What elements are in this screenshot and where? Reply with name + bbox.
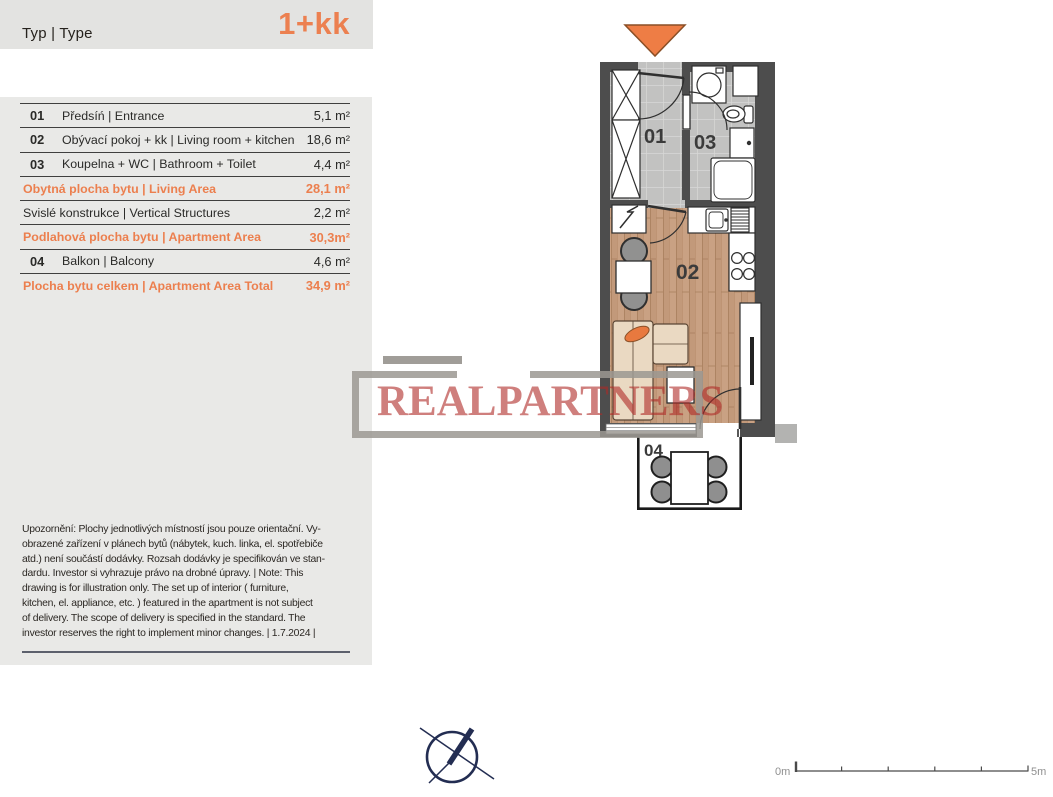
toilet	[723, 106, 753, 123]
header-bar: Typ | Type 1+kk	[0, 0, 373, 49]
entrance-arrow	[625, 25, 685, 56]
room-label-02: 02	[676, 261, 699, 284]
floorplan-sheet: Typ | Type 1+kk 01Předsíń | Entrance5,1 …	[0, 0, 1053, 797]
dining-set	[616, 238, 651, 310]
disclaimer-underline	[22, 651, 350, 653]
disclaimer-line: of delivery. The scope of delivery is sp…	[22, 612, 368, 627]
disclaimer-line: kitchen, el. appliance, etc. ) featured …	[22, 597, 368, 612]
room-area: 18,6 m²	[307, 132, 350, 147]
area-table-row: Obytná plocha bytu | Living Area28,1 m²	[20, 176, 350, 200]
room-area: 2,2 m²	[314, 205, 350, 220]
area-table-row: 01Předsíń | Entrance5,1 m²	[20, 103, 350, 127]
room-area: 28,1 m²	[306, 181, 350, 196]
tv-board	[740, 303, 761, 420]
room-area: 34,9 m²	[306, 278, 350, 293]
room-name: Obytná plocha bytu | Living Area	[20, 182, 306, 196]
room-number: 04	[20, 254, 62, 269]
room-area: 4,6 m²	[314, 254, 350, 269]
disclaimer-line: Upozornění: Plochy jednotlivých místnost…	[22, 523, 368, 538]
area-table-row: Svislé konstrukce | Vertical Structures2…	[20, 200, 350, 224]
room-name: Plocha bytu celkem | Apartment Area Tota…	[20, 279, 306, 293]
washbasin	[730, 128, 754, 158]
balcony-table	[671, 452, 708, 504]
area-table-row: 04Balkon | Balcony4,6 m²	[20, 249, 350, 273]
room-name: Předsíń | Entrance	[62, 109, 314, 123]
room-number: 01	[20, 108, 62, 123]
room-number: 03	[20, 157, 62, 172]
disclaimer-line: dardu. Investor si vyhrazuje právo na dr…	[22, 567, 368, 582]
room-label-03: 03	[694, 132, 716, 154]
room-name: Koupelna + WC | Bathroom + Toilet	[62, 157, 314, 171]
disclaimer-text: Upozornění: Plochy jednotlivých místnost…	[22, 523, 368, 641]
area-table-row: 03Koupelna + WC | Bathroom + Toilet4,4 m…	[20, 152, 350, 176]
room-label-04: 04	[644, 441, 663, 460]
wardrobe	[612, 70, 640, 198]
room-name: Obývací pokoj + kk | Living room + kitch…	[62, 133, 307, 147]
room-label-01: 01	[644, 126, 666, 148]
disclaimer-line: atd.) není součástí dodávky. Rozsah dodá…	[22, 553, 368, 568]
disclaimer-line: investor reserves the right to implement…	[22, 627, 368, 642]
room-area: 4,4 m²	[314, 157, 350, 172]
type-label: Typ | Type	[22, 25, 93, 42]
scale-bar: 0m 5m	[770, 756, 1053, 784]
area-table-row: 02Obývací pokoj + kk | Living room + kit…	[20, 127, 350, 151]
room-name: Svislé konstrukce | Vertical Structures	[20, 206, 314, 220]
tv	[750, 337, 754, 385]
area-table-row: Podlahová plocha bytu | Apartment Area30…	[20, 224, 350, 248]
disclaimer-line: obrazené zařízení v plánech bytů (nábyte…	[22, 538, 368, 553]
room-area: 5,1 m²	[314, 108, 350, 123]
floor-plan: 01 03 02 04	[595, 15, 810, 515]
room-area: 30,3m²	[309, 230, 350, 245]
electric-panel	[612, 205, 646, 233]
disclaimer-line: drawing is for illustration only. The se…	[22, 582, 368, 597]
area-table: 01Předsíń | Entrance5,1 m²02Obývací poko…	[20, 103, 350, 297]
apartment-type-value: 1+kk	[278, 6, 350, 42]
watermark-bar	[383, 356, 462, 364]
scale-end-label: 5m	[1031, 766, 1046, 778]
watermark-logo: REALPARTNERS	[377, 377, 724, 426]
compass-icon	[412, 720, 502, 790]
bathroom-shelf	[733, 66, 758, 96]
bathtub	[711, 158, 755, 202]
room-name: Balkon | Balcony	[62, 254, 314, 268]
room-number: 02	[20, 132, 62, 147]
area-table-row: Plocha bytu celkem | Apartment Area Tota…	[20, 273, 350, 297]
scale-start-label: 0m	[775, 766, 790, 778]
room-name: Podlahová plocha bytu | Apartment Area	[20, 230, 309, 244]
